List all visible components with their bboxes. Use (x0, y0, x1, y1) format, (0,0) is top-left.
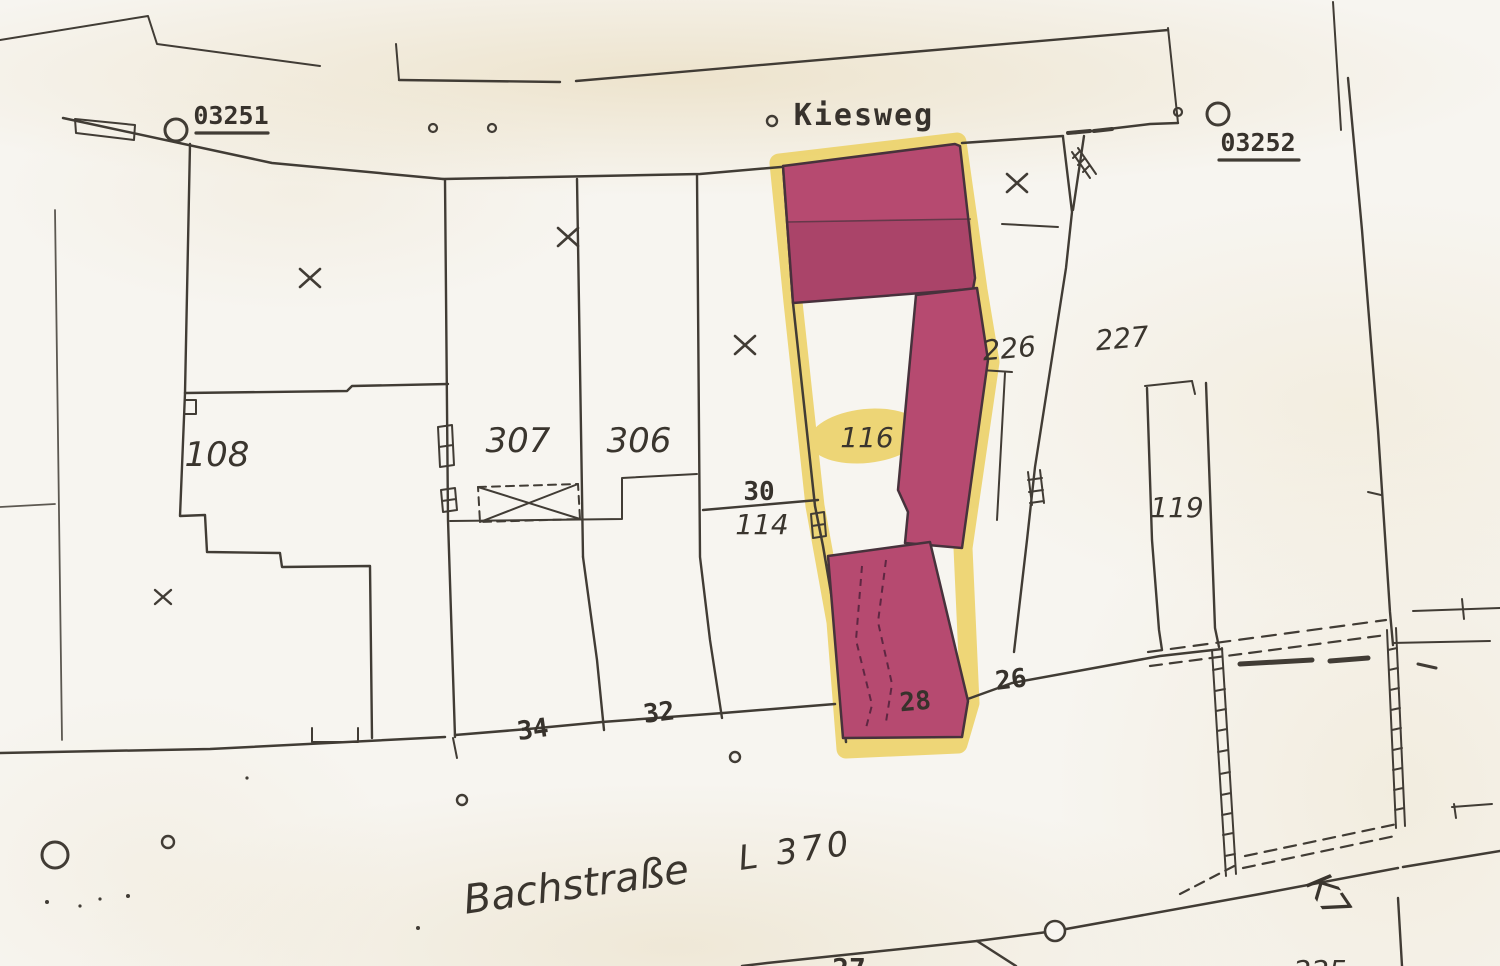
wall-symbol (1028, 470, 1044, 505)
boundary-point-circle (1045, 921, 1065, 941)
parcel-119-top (1145, 381, 1192, 386)
parcel-108-north (185, 144, 190, 393)
curb-bracket (312, 728, 358, 742)
street-south-edge (443, 167, 781, 179)
wedge-edge (1073, 136, 1084, 210)
parcel-226-west (997, 373, 1005, 520)
path-dashed-line (1148, 620, 1386, 652)
boundary-point-circle (162, 836, 174, 848)
west-boundary-line (55, 210, 62, 740)
parcel-label-225-partial: 225 (1293, 954, 1346, 966)
retaining-wall-symbol (1387, 628, 1405, 828)
street-label-kiesweg: Kiesweg (794, 98, 934, 133)
house-number-30: 30 (743, 477, 774, 507)
road-fork-line (977, 941, 1016, 966)
road-label-k7: K7 (1298, 866, 1358, 928)
highlighted-building-front-lower-band (786, 219, 973, 303)
boundary-point-circle (429, 124, 437, 132)
boundary-line (1413, 608, 1500, 611)
bachstrasse-north-edge (0, 737, 445, 753)
parcel-label-119: 119 (1150, 491, 1203, 524)
control-point-label-03252: 03252 (1220, 128, 1295, 157)
parcel-label-226: 226 (981, 330, 1037, 368)
street-north-edge (399, 80, 560, 82)
parcel-label-108: 108 (185, 435, 250, 475)
thick-dash-marks (1240, 658, 1368, 664)
boundary-point-circle (767, 116, 777, 126)
retaining-wall-symbol (1212, 648, 1236, 876)
x-mark (1007, 174, 1027, 192)
house-number-34: 34 (515, 713, 550, 747)
boundary-bracket (185, 400, 196, 414)
front-dash-marks (1068, 129, 1112, 133)
boundary-point-circle (488, 124, 496, 132)
parcel-label-227: 227 (1094, 320, 1150, 358)
small-dash-marks (1418, 664, 1436, 668)
cadastral-map-scan: 03251 Kiesweg 03252 108 307 306 114 116 … (0, 0, 1500, 966)
x-mark (558, 228, 578, 246)
parcel-label-306: 306 (607, 421, 672, 461)
parcel-306-step (450, 474, 697, 521)
parcel-108-top (185, 384, 448, 393)
house-number-32: 32 (642, 696, 677, 730)
parcel-label-116: 116 (840, 421, 893, 454)
control-point-circle (1207, 103, 1229, 125)
x-mark (735, 336, 755, 354)
house-number-28: 28 (898, 686, 932, 719)
boundary-point-circle (42, 842, 68, 868)
boundary-point-circle (457, 795, 467, 805)
dashed-building-outline (478, 484, 580, 522)
building-row-tick (396, 44, 399, 80)
boundary-point-circle (730, 752, 740, 762)
building-row-line (0, 16, 320, 66)
x-mark (300, 269, 320, 287)
road-label-l370: L 370 (736, 823, 855, 879)
ink-speckles (45, 776, 420, 930)
boundary-tick (453, 738, 457, 758)
house-34-32-divider (583, 557, 604, 730)
parcel-boundary-226-227 (1014, 137, 1072, 652)
street-south-edge (962, 136, 1063, 143)
street-north-edge (576, 30, 1168, 81)
map-canvas: 03251 Kiesweg 03252 108 307 306 114 116 … (0, 0, 1500, 966)
boundary-bracket (1452, 804, 1492, 818)
control-point-label-03251: 03251 (193, 101, 268, 130)
west-boundary-line (0, 504, 55, 507)
control-point-circle (165, 119, 187, 141)
house-number-27-partial: 27 (832, 952, 866, 966)
boundary-tick (1192, 381, 1195, 394)
boundary-bracket (1462, 599, 1464, 619)
east-boundary-line (1348, 78, 1393, 645)
parcel-306-east (697, 175, 722, 718)
road-edge-tick (1398, 898, 1402, 966)
street-label-bachstrasse: Bachstraße (461, 847, 692, 924)
parcel-119-east (1206, 383, 1219, 647)
boundary-tick (1368, 492, 1381, 495)
highlighted-building-rear (828, 542, 968, 738)
building-row-tick (1333, 2, 1341, 130)
parcel-label-307: 307 (486, 421, 551, 461)
house-number-26: 26 (994, 663, 1029, 697)
parcel-line (1002, 224, 1058, 227)
parcel-label-114: 114 (735, 508, 788, 541)
x-mark (155, 590, 171, 604)
bachstrasse-south-edge (1403, 851, 1500, 867)
wall-symbol (1072, 148, 1096, 178)
path-dashed-line (1180, 864, 1238, 894)
parcel-306-west (577, 179, 583, 557)
boundary-line (1393, 641, 1490, 643)
